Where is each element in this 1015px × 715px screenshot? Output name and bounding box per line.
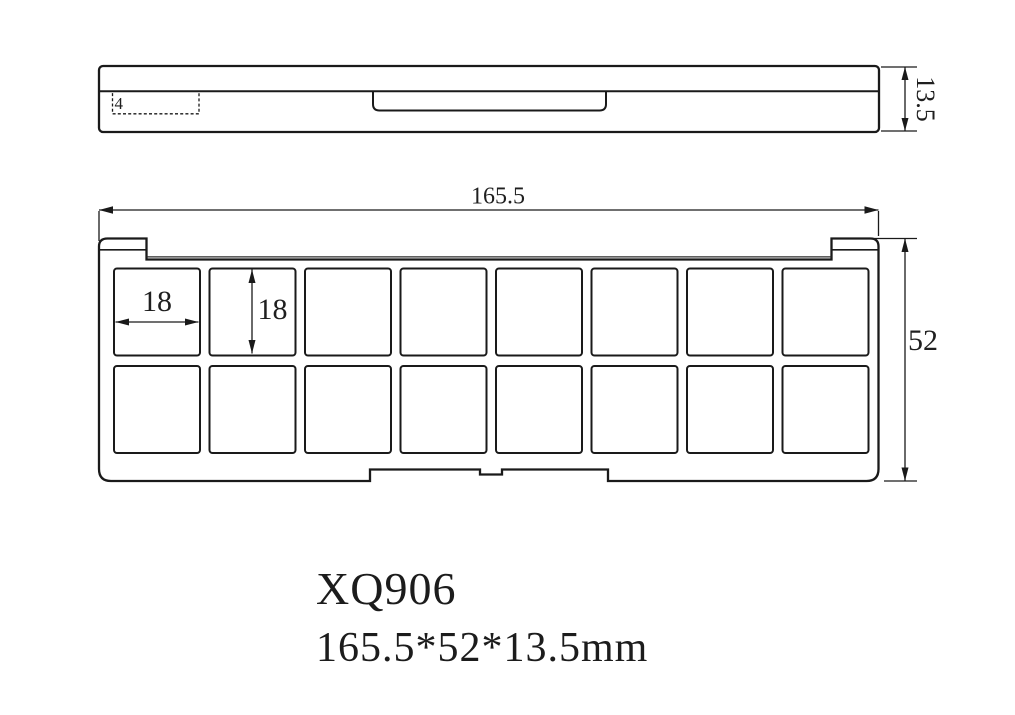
model-number-text: XQ906 [316,563,456,614]
title-block: XQ906 165.5*52*13.5mm [316,563,648,671]
arrow-down-icon [902,118,909,131]
palette-outline [99,239,879,482]
overall-height-dim-label: 52 [908,324,938,357]
arrow-up-icon [902,239,909,253]
side-view: 4 13.5 [99,66,940,132]
pan-height-dim-label: 18 [258,293,288,326]
arrow-up-icon [902,67,909,80]
pan-width-dim-label: 18 [142,285,172,318]
dim-thickness: 13.5 [881,67,940,131]
top-view: 165.5 18 18 [99,184,938,482]
dim-overall-width: 165.5 [99,184,879,242]
arrow-right-icon [865,206,879,213]
detail-dim-label: 4 [115,94,124,113]
arrow-left-icon [99,206,113,213]
arrow-down-icon [902,468,909,482]
overall-width-dim-label: 165.5 [471,184,525,210]
side-view-outline [99,66,879,132]
thickness-dim-label: 13.5 [911,76,940,122]
technical-drawing: 4 13.5 165.5 18 [0,0,1015,715]
overall-size-text: 165.5*52*13.5mm [316,625,648,671]
drawing-sheet: 4 13.5 165.5 18 [0,0,1015,715]
